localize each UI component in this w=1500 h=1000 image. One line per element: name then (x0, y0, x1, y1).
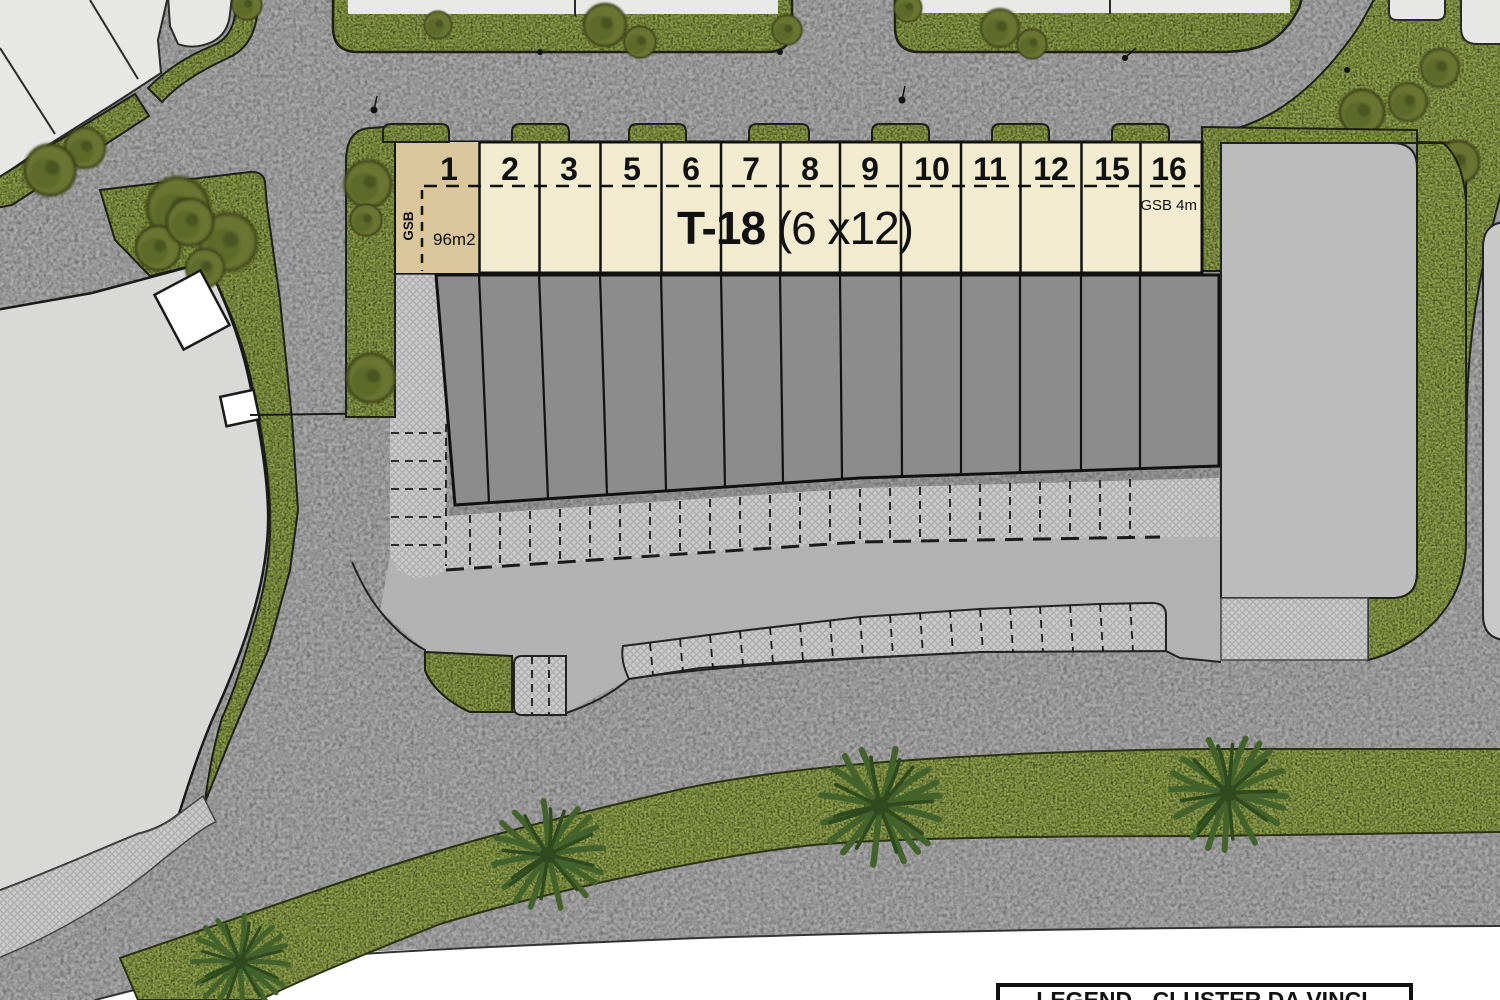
svg-text:9: 9 (861, 151, 879, 187)
svg-text:5: 5 (623, 151, 641, 187)
svg-text:16: 16 (1151, 151, 1187, 187)
svg-text:6: 6 (682, 151, 700, 187)
svg-text:8: 8 (801, 151, 819, 187)
svg-text:LEGEND - CLUSTER DA VINCI: LEGEND - CLUSTER DA VINCI (1036, 987, 1367, 1000)
svg-text:1: 1 (440, 151, 458, 187)
svg-text:3: 3 (560, 151, 578, 187)
svg-text:11: 11 (973, 151, 1007, 187)
svg-text:GSB 4m: GSB 4m (1140, 197, 1197, 214)
svg-text:12: 12 (1033, 151, 1069, 187)
svg-text:T-18 (6 x12): T-18 (6 x12) (677, 202, 913, 254)
svg-text:GSB: GSB (401, 211, 416, 241)
svg-text:10: 10 (914, 151, 950, 187)
svg-text:15: 15 (1094, 151, 1130, 187)
svg-text:7: 7 (742, 151, 760, 187)
svg-text:2: 2 (501, 151, 519, 187)
svg-text:96m2: 96m2 (433, 230, 476, 249)
